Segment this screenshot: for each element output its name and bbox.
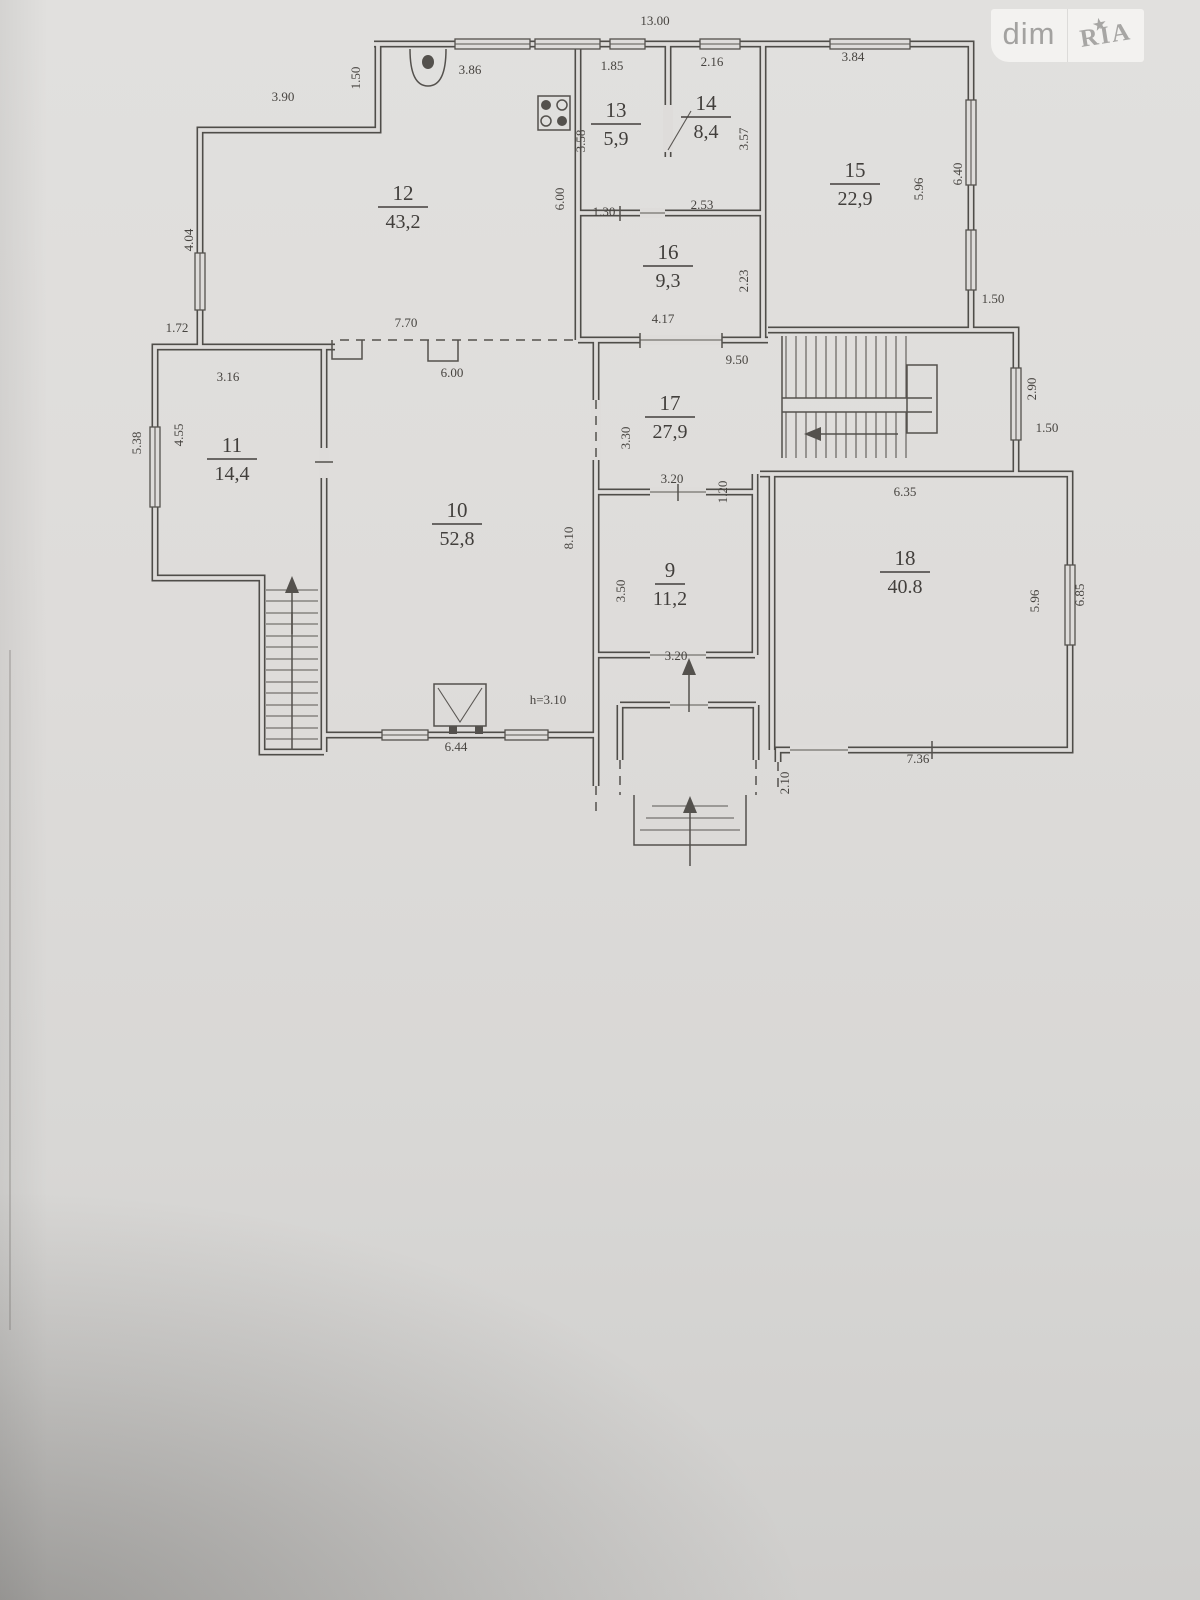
dimension-label: 1.50 <box>348 67 363 90</box>
scanned-floor-plan-photo: 13.003.901.503.861.852.163.843.583.575.9… <box>0 0 1200 1600</box>
watermark-ria-text: RIA <box>1078 18 1134 54</box>
sink-icon <box>410 49 446 86</box>
dimension-label: 3.86 <box>459 62 482 77</box>
svg-text:11: 11 <box>222 433 242 457</box>
dimension-label: 3.20 <box>665 648 688 663</box>
dimension-label: 4.17 <box>652 311 675 326</box>
svg-text:52,8: 52,8 <box>440 528 475 550</box>
dimension-label: 1.50 <box>982 291 1005 306</box>
svg-text:22,9: 22,9 <box>838 188 873 210</box>
dimension-label: 1.20 <box>715 481 730 504</box>
room-13-label: 135,9 <box>591 98 641 150</box>
dimension-label: 3.50 <box>613 580 628 603</box>
dimension-label: 5.38 <box>129 432 144 455</box>
room-17-label: 1727,9 <box>645 391 695 443</box>
entrance-porch <box>634 658 746 866</box>
staircase-right <box>782 336 937 458</box>
dimension-label: 6.85 <box>1072 584 1087 607</box>
dimension-label: 6.44 <box>445 739 468 754</box>
dimension-label: 3.20 <box>661 471 684 486</box>
dimension-label: 5.96 <box>911 177 926 200</box>
room-9-label: 911,2 <box>653 558 687 610</box>
dimension-label: 6.00 <box>552 188 567 211</box>
dimension-label: 8.10 <box>561 527 576 550</box>
dimension-label: 3.58 <box>573 130 588 153</box>
dimension-label: 3.30 <box>618 427 633 450</box>
svg-text:12: 12 <box>393 181 414 205</box>
room-10-label: 1052,8 <box>432 498 482 550</box>
dimension-label: 2.90 <box>1024 378 1039 401</box>
room-14-label: 148,4 <box>681 91 731 143</box>
dimension-label: 6.40 <box>950 163 965 186</box>
svg-text:17: 17 <box>660 391 681 415</box>
dimension-label: h=3.10 <box>530 692 567 707</box>
room-12-label: 1243,2 <box>378 181 428 233</box>
paper-edge-shadow <box>9 650 11 1330</box>
dimension-label: 7.70 <box>395 315 418 330</box>
svg-text:27,9: 27,9 <box>653 421 688 443</box>
dimension-label: 1.85 <box>601 58 624 73</box>
dimension-label: 6.00 <box>441 365 464 380</box>
dimension-label: 7.36 <box>907 751 930 766</box>
dimension-label: 3.16 <box>217 369 240 384</box>
svg-text:9,3: 9,3 <box>656 270 681 292</box>
svg-text:15: 15 <box>845 158 866 182</box>
svg-text:14: 14 <box>696 91 718 115</box>
svg-text:9: 9 <box>665 558 676 582</box>
svg-text:5,9: 5,9 <box>604 128 629 150</box>
svg-text:10: 10 <box>447 498 468 522</box>
staircase-left <box>266 576 318 750</box>
dimension-label: 2.53 <box>691 197 714 212</box>
gas-stove-icon <box>538 96 570 130</box>
dashed-openings <box>332 340 778 812</box>
watermark-ria-label: ★ RIA <box>1068 22 1144 50</box>
dimension-label: 3.57 <box>736 127 751 150</box>
watermark: dim ★ RIA <box>991 9 1144 62</box>
fireplace-icon <box>434 684 486 734</box>
room-15-label: 1522,9 <box>830 158 880 210</box>
dimension-label: 2.23 <box>736 270 751 293</box>
dimension-label: 3.90 <box>272 89 295 104</box>
dimension-label: 4.04 <box>181 228 196 251</box>
dimension-label: 4.55 <box>171 424 186 447</box>
svg-text:8,4: 8,4 <box>694 121 719 143</box>
room-18-label: 1840.8 <box>880 546 930 598</box>
room-11-label: 1114,4 <box>207 433 257 485</box>
dimension-label: 2.10 <box>777 772 792 795</box>
svg-text:13: 13 <box>606 98 627 122</box>
dimension-label: 2.16 <box>701 54 724 69</box>
svg-text:11,2: 11,2 <box>653 588 687 610</box>
svg-text:14,4: 14,4 <box>215 463 250 485</box>
dimension-label: 1.30 <box>593 204 616 219</box>
dimension-label: 1.72 <box>166 320 189 335</box>
pillar-symbols <box>332 340 458 361</box>
svg-text:43,2: 43,2 <box>386 211 421 233</box>
dimension-label: 5.96 <box>1027 589 1042 612</box>
room-16-label: 169,3 <box>643 240 693 292</box>
watermark-dim-label: dim <box>991 16 1067 56</box>
dimension-label: 6.35 <box>894 484 917 499</box>
svg-text:16: 16 <box>658 240 679 264</box>
floor-plan-drawing: 13.003.901.503.861.852.163.843.583.575.9… <box>0 0 1200 900</box>
svg-text:18: 18 <box>895 546 916 570</box>
dimension-label: 13.00 <box>640 13 669 28</box>
svg-text:40.8: 40.8 <box>888 576 923 598</box>
dimension-label: 9.50 <box>726 352 749 367</box>
dimension-label: 3.84 <box>842 49 865 64</box>
dimension-label: 1.50 <box>1036 420 1059 435</box>
